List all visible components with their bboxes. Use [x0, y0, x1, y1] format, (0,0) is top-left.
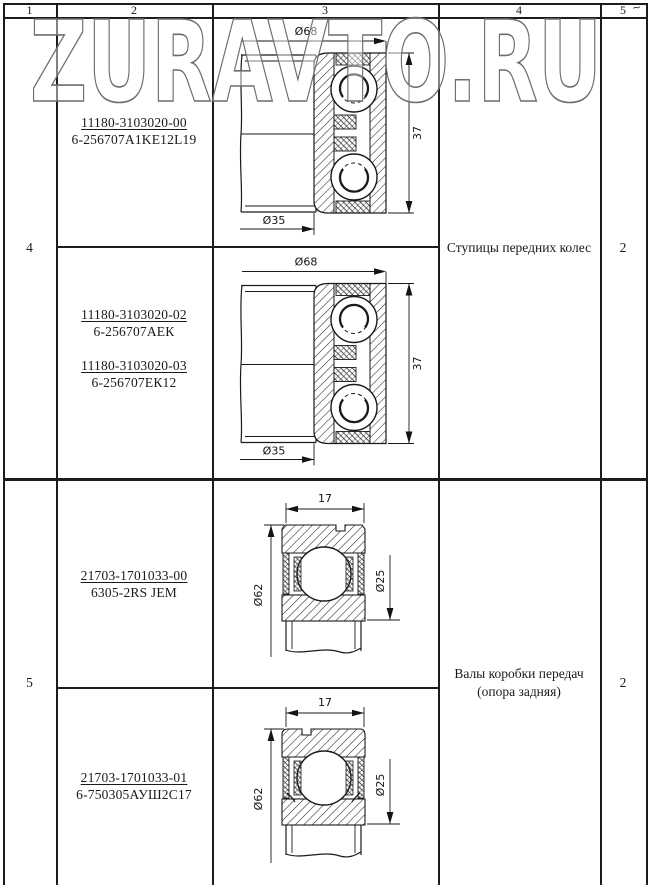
dim-bore-diameter: Ø35 — [263, 445, 286, 458]
col-header-2: 2 — [56, 3, 212, 17]
part-number-industry: 6-256707АЕК — [81, 324, 187, 340]
drawing-cell-r4-sub2: Ø68 37 Ø35 — [212, 246, 438, 478]
dim-outer-diameter: Ø62 — [252, 788, 265, 811]
drawing-cell-r5-sub1: 17 Ø62 Ø25 — [212, 481, 438, 687]
dim-width: 17 — [318, 492, 332, 505]
part-number-industry: 6305-2RS JEM — [81, 585, 188, 601]
part-number-oem: 11180-3103020-03 — [81, 358, 187, 374]
application-cell-r4: Ступицы передних колес — [438, 17, 600, 478]
part-number-industry: 6-750305АУШ2С17 — [76, 787, 192, 803]
dim-width: 37 — [411, 357, 424, 371]
dim-outer-diameter: Ø68 — [295, 25, 318, 38]
part-entry: 11180-3103020-00 6-256707A1KE12L19 — [72, 115, 197, 148]
part-entry: 11180-3103020-02 6-256707АЕК — [81, 307, 187, 340]
dim-outer-diameter: Ø68 — [295, 256, 318, 269]
row-number-4: 4 — [3, 17, 56, 478]
drawing-cell-r5-sub2: 17 Ø62 Ø25 — [212, 687, 438, 885]
part-number-oem: 21703-1701033-00 — [81, 568, 188, 584]
part-entry: 11180-3103020-03 6-256707ЕК12 — [81, 358, 187, 391]
col-header-3: 3 — [212, 3, 438, 17]
qty-cell-r4: 2 — [600, 17, 646, 478]
part-cell-r5-sub2: 21703-1701033-01 6-750305АУШ2С17 — [56, 687, 212, 885]
application-cell-r5: Валы коробки передач (опора задняя) — [438, 481, 600, 885]
catalog-page: 1 2 3 4 5 ~ 4 11180-3103020-00 6-256707A… — [0, 0, 651, 885]
part-cell-r5-sub1: 21703-1701033-00 6305-2RS JEM — [56, 481, 212, 687]
dim-outer-diameter: Ø62 — [252, 584, 265, 607]
dim-width: 17 — [318, 696, 332, 709]
dim-width: 37 — [411, 126, 424, 140]
table-border-right — [646, 3, 648, 885]
application-text-line2: (опора задняя) — [477, 683, 561, 701]
ball-bearing-drawing: 17 Ø62 Ø25 — [212, 481, 438, 687]
hub-bearing-drawing: Ø68 37 Ø35 — [212, 246, 438, 478]
dim-bore-diameter: Ø25 — [374, 570, 387, 593]
part-entry: 21703-1701033-01 6-750305АУШ2С17 — [76, 770, 192, 803]
row-number-5: 5 — [3, 481, 56, 885]
part-entry: 21703-1701033-00 6305-2RS JEM — [81, 568, 188, 601]
col-header-4: 4 — [438, 3, 600, 17]
part-cell-r4-sub1: 11180-3103020-00 6-256707A1KE12L19 — [56, 17, 212, 246]
drawing-cell-r4-sub1: Ø68 37 Ø35 — [212, 17, 438, 246]
col-header-1: 1 — [3, 3, 56, 17]
part-number-oem: 11180-3103020-00 — [72, 115, 197, 131]
application-text: Ступицы передних колес — [447, 239, 591, 257]
hub-bearing-drawing: Ø68 37 Ø35 — [212, 17, 438, 246]
part-number-oem: 11180-3103020-02 — [81, 307, 187, 323]
dim-bore-diameter: Ø35 — [263, 214, 286, 227]
ball-bearing-drawing: 17 Ø62 Ø25 — [212, 687, 438, 885]
scan-artifact: ~ — [631, 0, 642, 14]
dim-bore-diameter: Ø25 — [374, 774, 387, 797]
part-cell-r4-sub2: 11180-3103020-02 6-256707АЕК 11180-31030… — [56, 246, 212, 478]
part-number-oem: 21703-1701033-01 — [76, 770, 192, 786]
part-number-industry: 6-256707ЕК12 — [81, 375, 187, 391]
qty-cell-r5: 2 — [600, 481, 646, 885]
application-text-line1: Валы коробки передач — [454, 665, 583, 683]
part-number-industry: 6-256707A1KE12L19 — [72, 132, 197, 148]
